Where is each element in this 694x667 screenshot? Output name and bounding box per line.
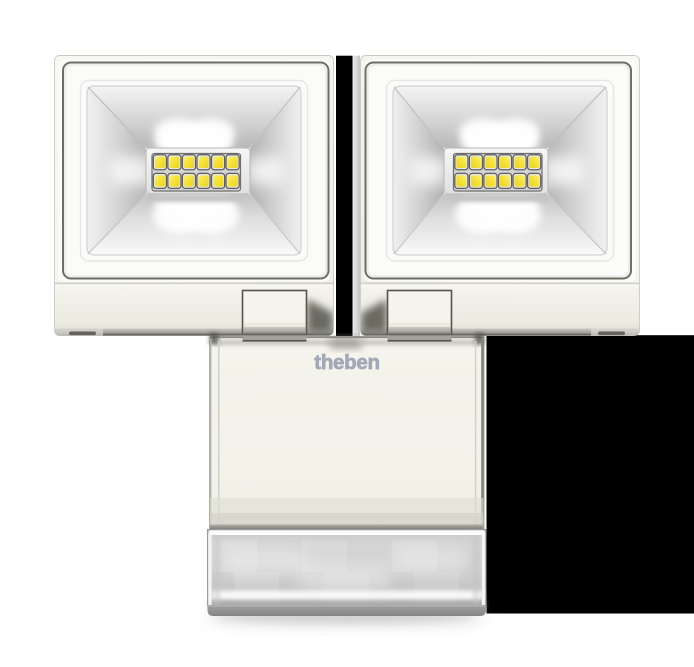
svg-text:theben: theben [314,351,379,374]
